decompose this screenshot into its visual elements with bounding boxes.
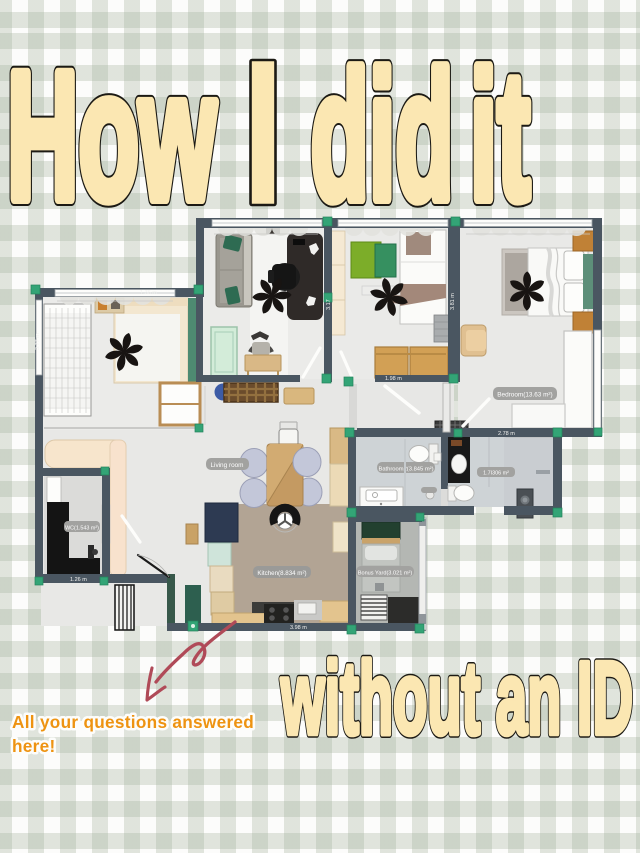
svg-text:WC(1.543 m²): WC(1.543 m²) [65, 526, 99, 532]
svg-text:All your questions answered: All your questions answered [12, 712, 254, 732]
svg-text:3.17: 3.17 [326, 299, 332, 310]
svg-text:1.7I306 m²: 1.7I306 m² [483, 471, 509, 477]
svg-text:without an ID: without an ID [280, 641, 633, 756]
svg-text:3.98 m: 3.98 m [290, 625, 307, 631]
svg-text:Living room: Living room [210, 462, 243, 469]
svg-text:did: did [311, 34, 454, 237]
svg-text:it: it [470, 34, 530, 237]
svg-text:here!: here! [12, 736, 56, 756]
svg-text:3.81 m: 3.81 m [450, 293, 456, 310]
svg-text:3.77 m: 3.77 m [35, 333, 41, 350]
svg-text:Bathroom2(3.845 m²): Bathroom2(3.845 m²) [378, 467, 433, 473]
svg-text:How: How [7, 34, 217, 237]
svg-text:1.36 m: 1.36 m [140, 290, 157, 296]
svg-text:Bonus Yard(3.021 m²): Bonus Yard(3.021 m²) [358, 571, 413, 577]
svg-text:Bedroom(13.63 m²): Bedroom(13.63 m²) [497, 392, 552, 399]
svg-text:2.78 m: 2.78 m [498, 431, 515, 437]
svg-text:Kitchen(8.834 m²): Kitchen(8.834 m²) [257, 570, 306, 577]
svg-text:1.98 m: 1.98 m [385, 376, 402, 382]
svg-text:1.26 m: 1.26 m [70, 577, 87, 583]
